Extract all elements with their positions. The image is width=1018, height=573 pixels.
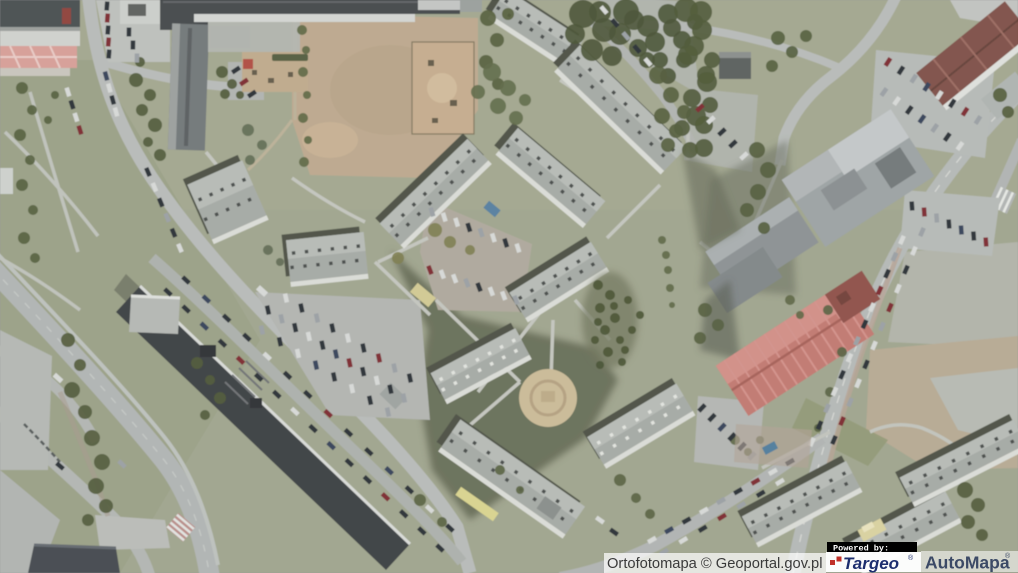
svg-text:AutoMapa: AutoMapa bbox=[925, 553, 1010, 573]
svg-text:Targeo: Targeo bbox=[843, 554, 899, 573]
svg-text:®: ® bbox=[908, 554, 914, 562]
svg-text:Ortofotomapa © Geoportal.gov.p: Ortofotomapa © Geoportal.gov.pl bbox=[607, 556, 822, 572]
svg-text:®: ® bbox=[1005, 552, 1011, 560]
